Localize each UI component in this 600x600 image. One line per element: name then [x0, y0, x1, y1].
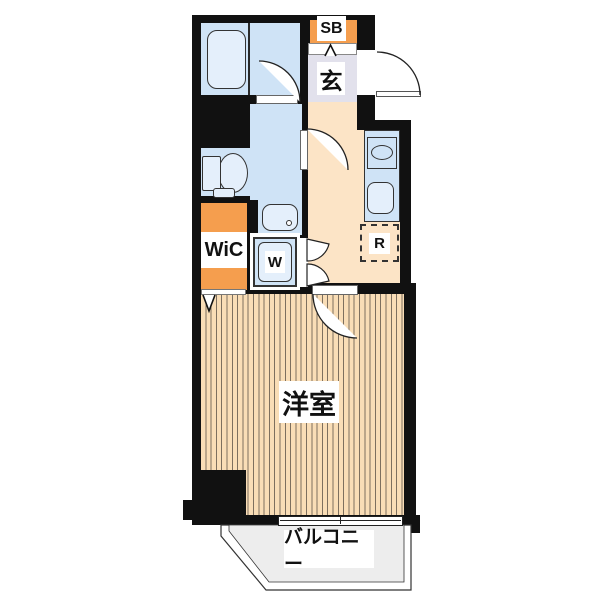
western-room-label: 洋室	[279, 381, 339, 423]
stove-burner	[371, 145, 393, 160]
wall-corner-southeast	[403, 515, 420, 533]
bathtub-deck-line	[248, 23, 250, 95]
washroom-door-opening	[300, 130, 308, 170]
room-door-opening	[312, 285, 358, 295]
washer-label: W	[265, 251, 285, 273]
wall-nub-west	[183, 500, 192, 520]
entrance-step-band	[308, 43, 357, 55]
balcony-label: バルコニー	[284, 530, 374, 568]
basin-drain	[286, 220, 292, 226]
entry-door-leaf	[376, 91, 421, 97]
bathroom-door-opening	[256, 95, 298, 104]
hallway-floor	[308, 130, 364, 283]
washroom-floor	[250, 104, 302, 200]
toilet-tank	[202, 156, 221, 191]
bathtub	[207, 30, 246, 89]
entry-door-arc	[377, 52, 420, 95]
wall-step-block	[201, 470, 246, 525]
toilet-base	[213, 188, 235, 198]
wic-opening	[201, 289, 246, 295]
wash-basin	[262, 204, 298, 231]
washer-door-opening	[300, 238, 308, 287]
toilet-bowl	[218, 153, 248, 193]
entry-opening	[357, 50, 375, 95]
refrigerator-label: R	[369, 233, 390, 254]
hallway-floor-upper	[308, 102, 357, 130]
walk-in-closet-label: WiC	[201, 232, 247, 268]
kitchen-sink	[367, 182, 394, 214]
entrance-label: 玄	[317, 62, 345, 95]
shoe-box-label: SB	[317, 16, 346, 41]
floor-plan: SB 玄 WiC W R 洋室 バルコニー	[0, 0, 600, 600]
